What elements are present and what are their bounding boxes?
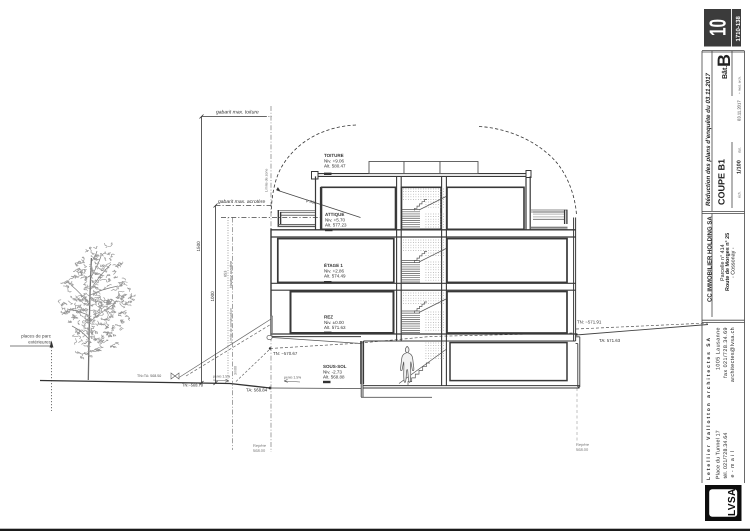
svg-text:Place du Tunnel 17: Place du Tunnel 17 [716, 430, 722, 479]
svg-text:B: B [714, 54, 734, 67]
svg-text:Letellier Vallotton architecte: Letellier Vallotton architectes SA [706, 336, 712, 480]
svg-text:ÉTAGE 1: ÉTAGE 1 [324, 263, 343, 268]
svg-text:gabarit max. acrotère: gabarit max. acrotère [218, 199, 265, 205]
svg-text:extérieures: extérieures [28, 340, 51, 345]
svg-text:1710-138: 1710-138 [735, 15, 742, 41]
svg-text:- Cossonay -: - Cossonay - [730, 247, 736, 278]
svg-text:Réduction des plans d’enquête: Réduction des plans d’enquête du 03.11.2… [705, 72, 712, 206]
svg-text:Alt. 577.23: Alt. 577.23 [325, 223, 347, 228]
svg-text:653: 653 [224, 271, 228, 277]
svg-text:03.11.2017: 03.11.2017 [737, 100, 742, 121]
svg-text:Niv. -2.73: Niv. -2.73 [323, 369, 342, 374]
svg-text:gabarit max. toiture: gabarit max. toiture [216, 110, 259, 116]
svg-text:TOITURE: TOITURE [324, 153, 344, 158]
svg-text:Alt. 568.88: Alt. 568.88 [323, 375, 345, 380]
svg-text:568.00: 568.00 [576, 447, 589, 452]
svg-text:places de parc: places de parc [21, 334, 52, 339]
svg-text:Alt. 571.63: Alt. 571.63 [324, 325, 346, 330]
svg-text:Hauteur acrotère: Hauteur acrotère [229, 261, 233, 288]
svg-text:+ mod. arch.: + mod. arch. [738, 76, 742, 94]
svg-text:TN: ~571.91: TN: ~571.91 [577, 320, 602, 325]
svg-text:REZ: REZ [324, 315, 333, 320]
svg-text:Limite de zone: Limite de zone [265, 169, 269, 192]
svg-text:TN:~568.78: TN:~568.78 [182, 383, 204, 388]
svg-text:TA: 568.84: TA: 568.84 [246, 388, 268, 393]
svg-text:éch.: éch. [738, 191, 742, 198]
svg-text:fax 021/728.34.69: fax 021/728.34.69 [723, 327, 729, 378]
svg-text:Alt. 580.47: Alt. 580.47 [324, 164, 346, 169]
svg-text:Niv. +2.86: Niv. +2.86 [324, 268, 345, 273]
svg-text:CC IMMOBILIER HOLDING SA: CC IMMOBILIER HOLDING SA [707, 216, 714, 302]
svg-text:TN=TA: 568.50: TN=TA: 568.50 [137, 374, 161, 378]
svg-text:ATTIQUE: ATTIQUE [325, 212, 344, 217]
svg-text:1500: 1500 [196, 241, 201, 252]
svg-text:1/100: 1/100 [737, 160, 743, 174]
svg-text:LVSA: LVSA [727, 488, 738, 516]
svg-text:SOUS-SOL: SOUS-SOL [323, 364, 347, 369]
svg-text:TN: ~570.67: TN: ~570.67 [273, 351, 298, 356]
svg-text:COUPE B1: COUPE B1 [717, 159, 727, 205]
svg-text:dat.: dat. [738, 147, 742, 153]
svg-text:tél. 021/728.34.64: tél. 021/728.34.64 [723, 432, 729, 478]
svg-text:architectes@lvsa.ch: architectes@lvsa.ch [730, 327, 736, 382]
svg-text:Niv. ±0.00: Niv. ±0.00 [324, 320, 344, 325]
svg-text:TA: 571.63: TA: 571.63 [599, 338, 621, 343]
svg-text:Niv. +9.06: Niv. +9.06 [324, 158, 345, 163]
svg-text:Niv. +5.70: Niv. +5.70 [325, 217, 346, 222]
svg-text:Alt. 574.49: Alt. 574.49 [324, 274, 346, 279]
svg-text:1000: 1000 [210, 291, 215, 302]
svg-text:Limite de construction: Limite de construction [229, 308, 233, 343]
svg-text:10: 10 [705, 19, 731, 36]
svg-text:pente 1.5%: pente 1.5% [284, 376, 301, 380]
svg-text:568.00: 568.00 [253, 448, 266, 453]
svg-text:3m00: 3m00 [234, 366, 238, 375]
svg-text:e-mail: e-mail [730, 449, 736, 478]
svg-text:1005 Lausanne: 1005 Lausanne [716, 327, 722, 370]
